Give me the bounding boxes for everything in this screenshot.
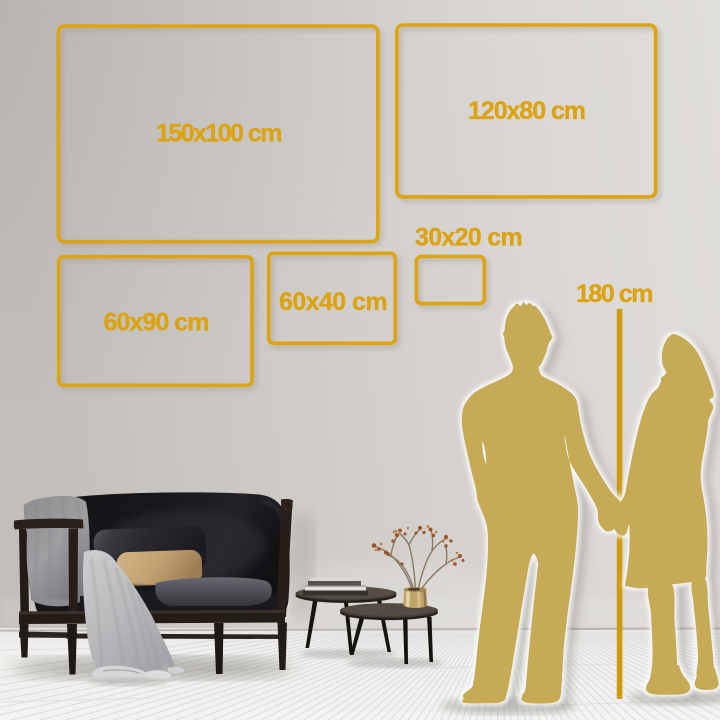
svg-text:30x20 cm: 30x20 cm bbox=[415, 224, 522, 252]
svg-text:120x80 cm: 120x80 cm bbox=[468, 97, 585, 125]
svg-text:60x40 cm: 60x40 cm bbox=[279, 288, 387, 316]
svg-text:180 cm: 180 cm bbox=[576, 280, 652, 308]
svg-text:150x100 cm: 150x100 cm bbox=[156, 120, 281, 148]
svg-text:60x90 cm: 60x90 cm bbox=[104, 309, 209, 337]
